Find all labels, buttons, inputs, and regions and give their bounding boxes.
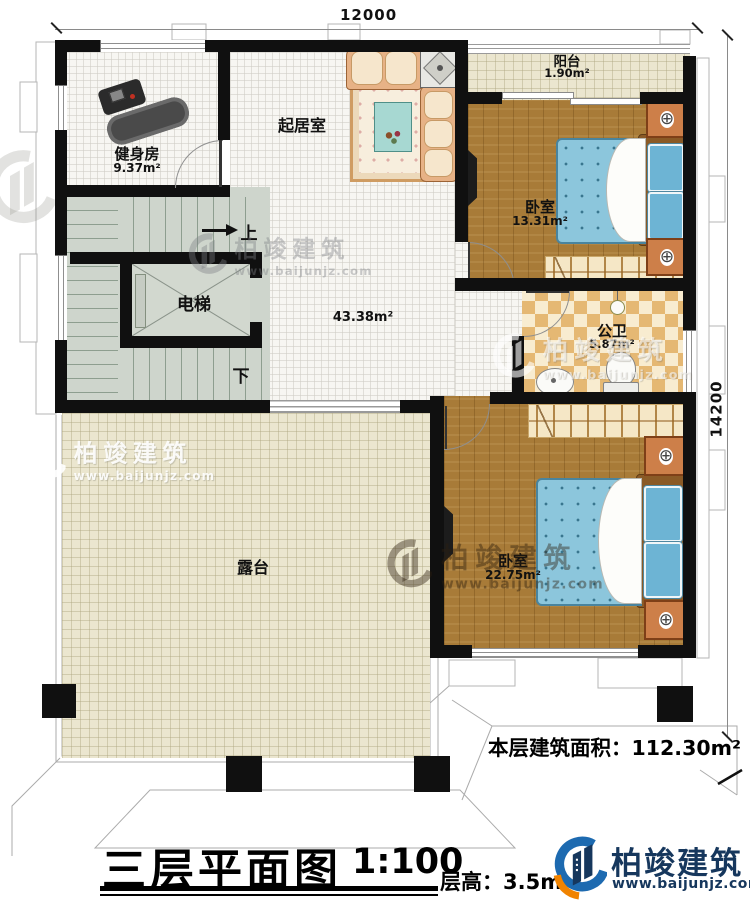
stairs-down-label: 下 [233,362,250,387]
tv-icon [468,150,477,206]
nightstand-knob-icon: ⊕ [660,249,674,266]
wall-bathroom-bottom [512,392,686,404]
wall-balcony-divider [640,92,686,104]
window-gym-top [100,40,207,52]
sofa-cushion [424,149,453,177]
nightstand-knob-icon: ⊕ [659,612,673,629]
terrace-opening [270,400,400,413]
stairs-up-arrow [202,229,228,232]
room-label-terrace: 露台 [237,554,269,578]
pendant-light-icon [610,300,625,315]
column [42,684,76,718]
floor-area-note: 本层建筑面积：112.30m² [488,731,741,761]
treadmill-button [130,94,135,99]
window-gym-left [55,85,67,132]
stair-treads-left [62,197,118,411]
column [414,756,450,792]
floor-terrace [62,413,430,758]
wall-right [683,290,696,330]
floor-area-label: 本层建筑面积： [488,736,632,760]
elevator-wall-nub-bottom [250,322,262,348]
nightstand-icon: ⊕ [644,600,688,640]
sofa-right [420,86,458,182]
closet-bedroom2 [528,404,688,438]
stairs-up-arrowhead [226,224,238,236]
sofa-back [346,46,422,90]
table-flowers [383,129,403,145]
wall-bedroom2-bottom [430,645,472,658]
bed1-blanket [606,138,646,242]
room-label-elevator: 电梯 [177,290,211,315]
title-underline [100,894,438,896]
window-bathroom-right [683,330,696,394]
elevator-cab: 电梯 [132,264,250,336]
sliding-door-balcony [502,92,574,99]
elevator-wall-nub-top [250,252,262,278]
room-area-bedroom1: 13.31m² [512,214,568,228]
sink-drain [551,378,556,383]
nightstand-knob-icon: ⊕ [659,448,673,465]
wall-gym-right [218,40,230,140]
window-stairs-left [55,255,67,342]
floor-plan-canvas: 电梯 ⊕ ⊕ ⊕ ⊕ [0,0,750,912]
wall-bathroom-left [512,336,524,396]
room-area-living: 43.38m² [333,310,393,325]
door-bedroom2-leaf [445,406,447,449]
wall-bedroom2-left [430,396,444,658]
sofa-cushion [424,91,453,119]
elevator-wall-top [70,252,262,264]
title-underline [100,886,438,891]
brand-logo-url: www.baijunjz.com [612,876,750,892]
corner-table [420,48,460,88]
coffee-table [374,102,412,152]
corner-table-dot [437,65,443,71]
nightstand-icon: ⊕ [646,238,688,276]
dimension-top-value: 12000 [340,6,397,24]
sofa-cushion [351,51,383,85]
sofa-cushion [385,51,417,85]
window-bedroom2-bottom [472,648,638,658]
wall-balcony-divider [468,92,502,104]
bed2-pillow [644,486,682,542]
bed1-pillow [648,192,684,240]
room-area-balcony: 1.90m² [544,66,589,80]
wall-bedroom2-bottom [638,645,696,658]
dimension-right-line [727,36,728,738]
column [657,686,693,722]
dimension-right-value: 14200 [708,380,726,437]
wall-living-terrace [55,400,270,413]
toilet-icon [606,352,636,386]
sofa-cushion [424,120,453,148]
elevator-door [135,274,146,328]
nightstand-icon: ⊕ [644,436,688,476]
wall-bedroom1-left [455,100,468,242]
nightstand-icon: ⊕ [646,100,688,138]
bed2-blanket [598,478,642,604]
tv-icon [444,506,453,562]
wall-bedroom1-bottom [455,278,686,291]
room-area-bathroom: 5.87m² [589,337,634,351]
column [226,756,262,792]
dimension-top-line [55,29,698,30]
wall-balcony-left [455,40,468,104]
room-area-bedroom2: 22.75m² [485,568,541,582]
bed1-pillow [648,144,684,192]
wall [205,40,468,52]
door-gym-leaf [219,140,222,187]
room-label-living: 起居室 [278,112,326,136]
wall-right [683,392,696,658]
elevator-wall-bottom [120,336,262,348]
door-bathroom-leaf [526,291,569,293]
wall [55,40,67,85]
brand-logo-icon [551,836,607,900]
nightstand-knob-icon: ⊕ [660,111,674,128]
brand-logo: 柏竣建筑 www.baijunjz.com [551,834,749,904]
floor-area-value: 112.30m² [632,736,741,760]
bed2-pillow [644,542,682,598]
stairs-up-label: 上 [241,219,258,244]
sliding-door-balcony [570,98,642,105]
room-area-gym: 9.37m² [113,161,160,175]
floor-height-note: 层高：3.5m [440,866,562,896]
